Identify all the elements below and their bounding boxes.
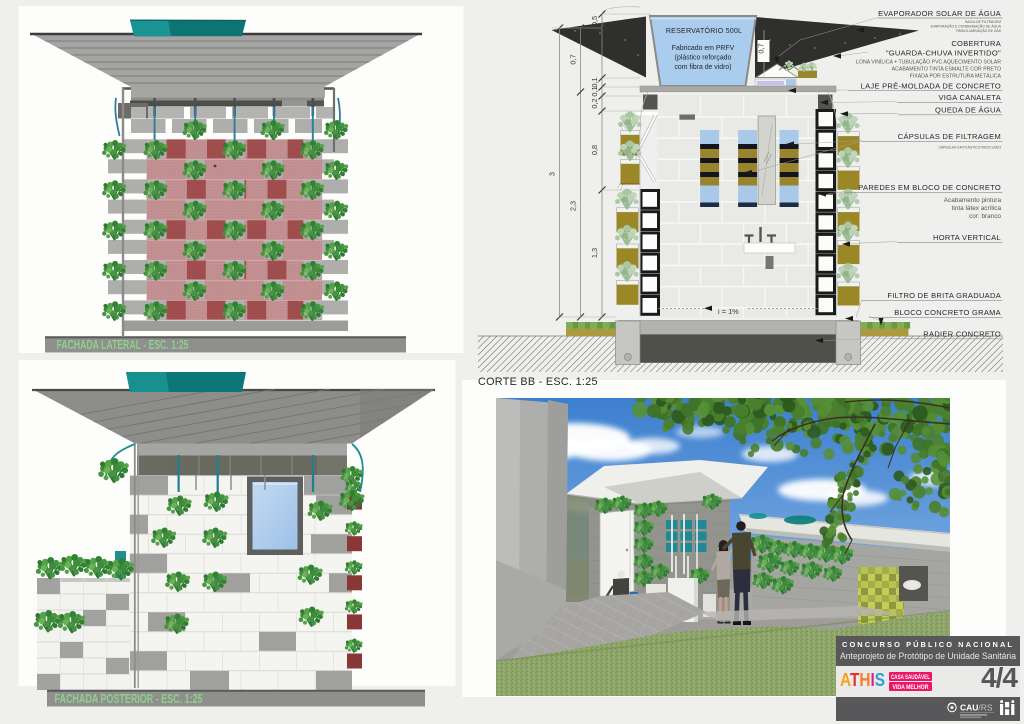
svg-text:RESERVATÓRIO 500L: RESERVATÓRIO 500L [666, 26, 742, 35]
svg-text:CONCURSO PÚBLICO NACIONAL: CONCURSO PÚBLICO NACIONAL [842, 640, 1014, 649]
svg-text:i = 1%: i = 1% [718, 307, 739, 316]
svg-text:EVAPORAÇÃO E CONDENSAÇÃO DE ÁG: EVAPORAÇÃO E CONDENSAÇÃO DE ÁGUA [931, 24, 1002, 29]
svg-text:Fabricado em PRFV: Fabricado em PRFV [672, 45, 735, 52]
svg-text:HORTA VERTICAL: HORTA VERTICAL [933, 233, 1001, 242]
svg-text:0,7: 0,7 [569, 54, 578, 64]
svg-text:0,5: 0,5 [590, 16, 599, 26]
svg-text:Anteprojeto de Protótipo de Un: Anteprojeto de Protótipo de Unidade Sani… [840, 651, 1016, 661]
svg-text:0,7: 0,7 [757, 43, 766, 53]
svg-text:FACHADA LATERAL - ESC. 1:25: FACHADA LATERAL - ESC. 1:25 [57, 338, 189, 352]
svg-text:PAREDES EM BLOCO DE CONCRETO: PAREDES EM BLOCO DE CONCRETO [858, 183, 1001, 192]
svg-text:COBERTURA: COBERTURA [951, 39, 1001, 48]
svg-text:RADIER CONCRETO: RADIER CONCRETO [923, 330, 1001, 339]
svg-text:BLOCO CONCRETO GRAMA: BLOCO CONCRETO GRAMA [894, 308, 1001, 317]
svg-text:1,3: 1,3 [590, 248, 599, 258]
svg-text:CORTE BB - ESC. 1:25: CORTE BB - ESC. 1:25 [478, 376, 598, 388]
svg-text:FIXADA POR ESTRUTURA METÁLICA: FIXADA POR ESTRUTURA METÁLICA [910, 73, 1002, 80]
svg-text:EVAPORADOR SOLAR DE ÁGUA: EVAPORADOR SOLAR DE ÁGUA [878, 9, 1001, 18]
svg-text:VIDA MELHOR: VIDA MELHOR [893, 684, 929, 691]
svg-text:VIGA CANALETA: VIGA CANALETA [938, 93, 1001, 102]
svg-text:com fibra de vidro): com fibra de vidro) [674, 64, 731, 71]
svg-text:0,8: 0,8 [590, 145, 599, 155]
svg-text:CASA SAUDÁVEL: CASA SAUDÁVEL [891, 674, 930, 681]
svg-text:BACIA DE FILTRAGEM: BACIA DE FILTRAGEM [965, 20, 1001, 24]
svg-text:ATHIS: ATHIS [840, 669, 885, 690]
svg-text:(plástico reforçado: (plástico reforçado [675, 55, 732, 62]
svg-text:CAU/RS: CAU/RS [960, 703, 993, 713]
svg-text:Acabamento pintura: Acabamento pintura [944, 197, 1002, 204]
svg-text:CÁPSULAS DE FILTRAGEM: CÁPSULAS DE FILTRAGEM [898, 132, 1001, 141]
svg-text:FILTRO DE BRITA GRADUADA: FILTRO DE BRITA GRADUADA [887, 291, 1001, 300]
svg-text:PARA ILUMINAÇÃO DE GÁS: PARA ILUMINAÇÃO DE GÁS [956, 28, 1001, 33]
svg-text:2,3: 2,3 [569, 201, 578, 211]
svg-text:CÁPSULAS EM PLÁSTICO RECICLADO: CÁPSULAS EM PLÁSTICO RECICLADO [938, 146, 1001, 150]
svg-text:tinta látex acrílica: tinta látex acrílica [952, 205, 1002, 212]
svg-text:cor: branco: cor: branco [969, 213, 1001, 220]
svg-text:QUEDA DE ÁGUA: QUEDA DE ÁGUA [935, 106, 1001, 115]
svg-text:FACHADA POSTERIOR - ESC. 1:25: FACHADA POSTERIOR - ESC. 1:25 [55, 692, 203, 706]
svg-text:LONA VINÍLICA + TUBULAÇÃO PVC: LONA VINÍLICA + TUBULAÇÃO PVC AQUECIMENT… [856, 59, 1001, 66]
svg-text:0,1: 0,1 [590, 86, 599, 96]
svg-text:ACABAMENTO TINTA ESMALTE COR P: ACABAMENTO TINTA ESMALTE COR PRETO [892, 67, 1001, 73]
svg-text:0,2: 0,2 [590, 98, 599, 108]
svg-text:"GUARDA-CHUVA INVERTIDO": "GUARDA-CHUVA INVERTIDO" [886, 49, 1001, 58]
svg-text:LAJE PRÉ-MOLDADA DE CONCRETO: LAJE PRÉ-MOLDADA DE CONCRETO [861, 82, 1001, 91]
svg-text:3: 3 [548, 172, 557, 176]
svg-text:0,1: 0,1 [590, 77, 599, 87]
